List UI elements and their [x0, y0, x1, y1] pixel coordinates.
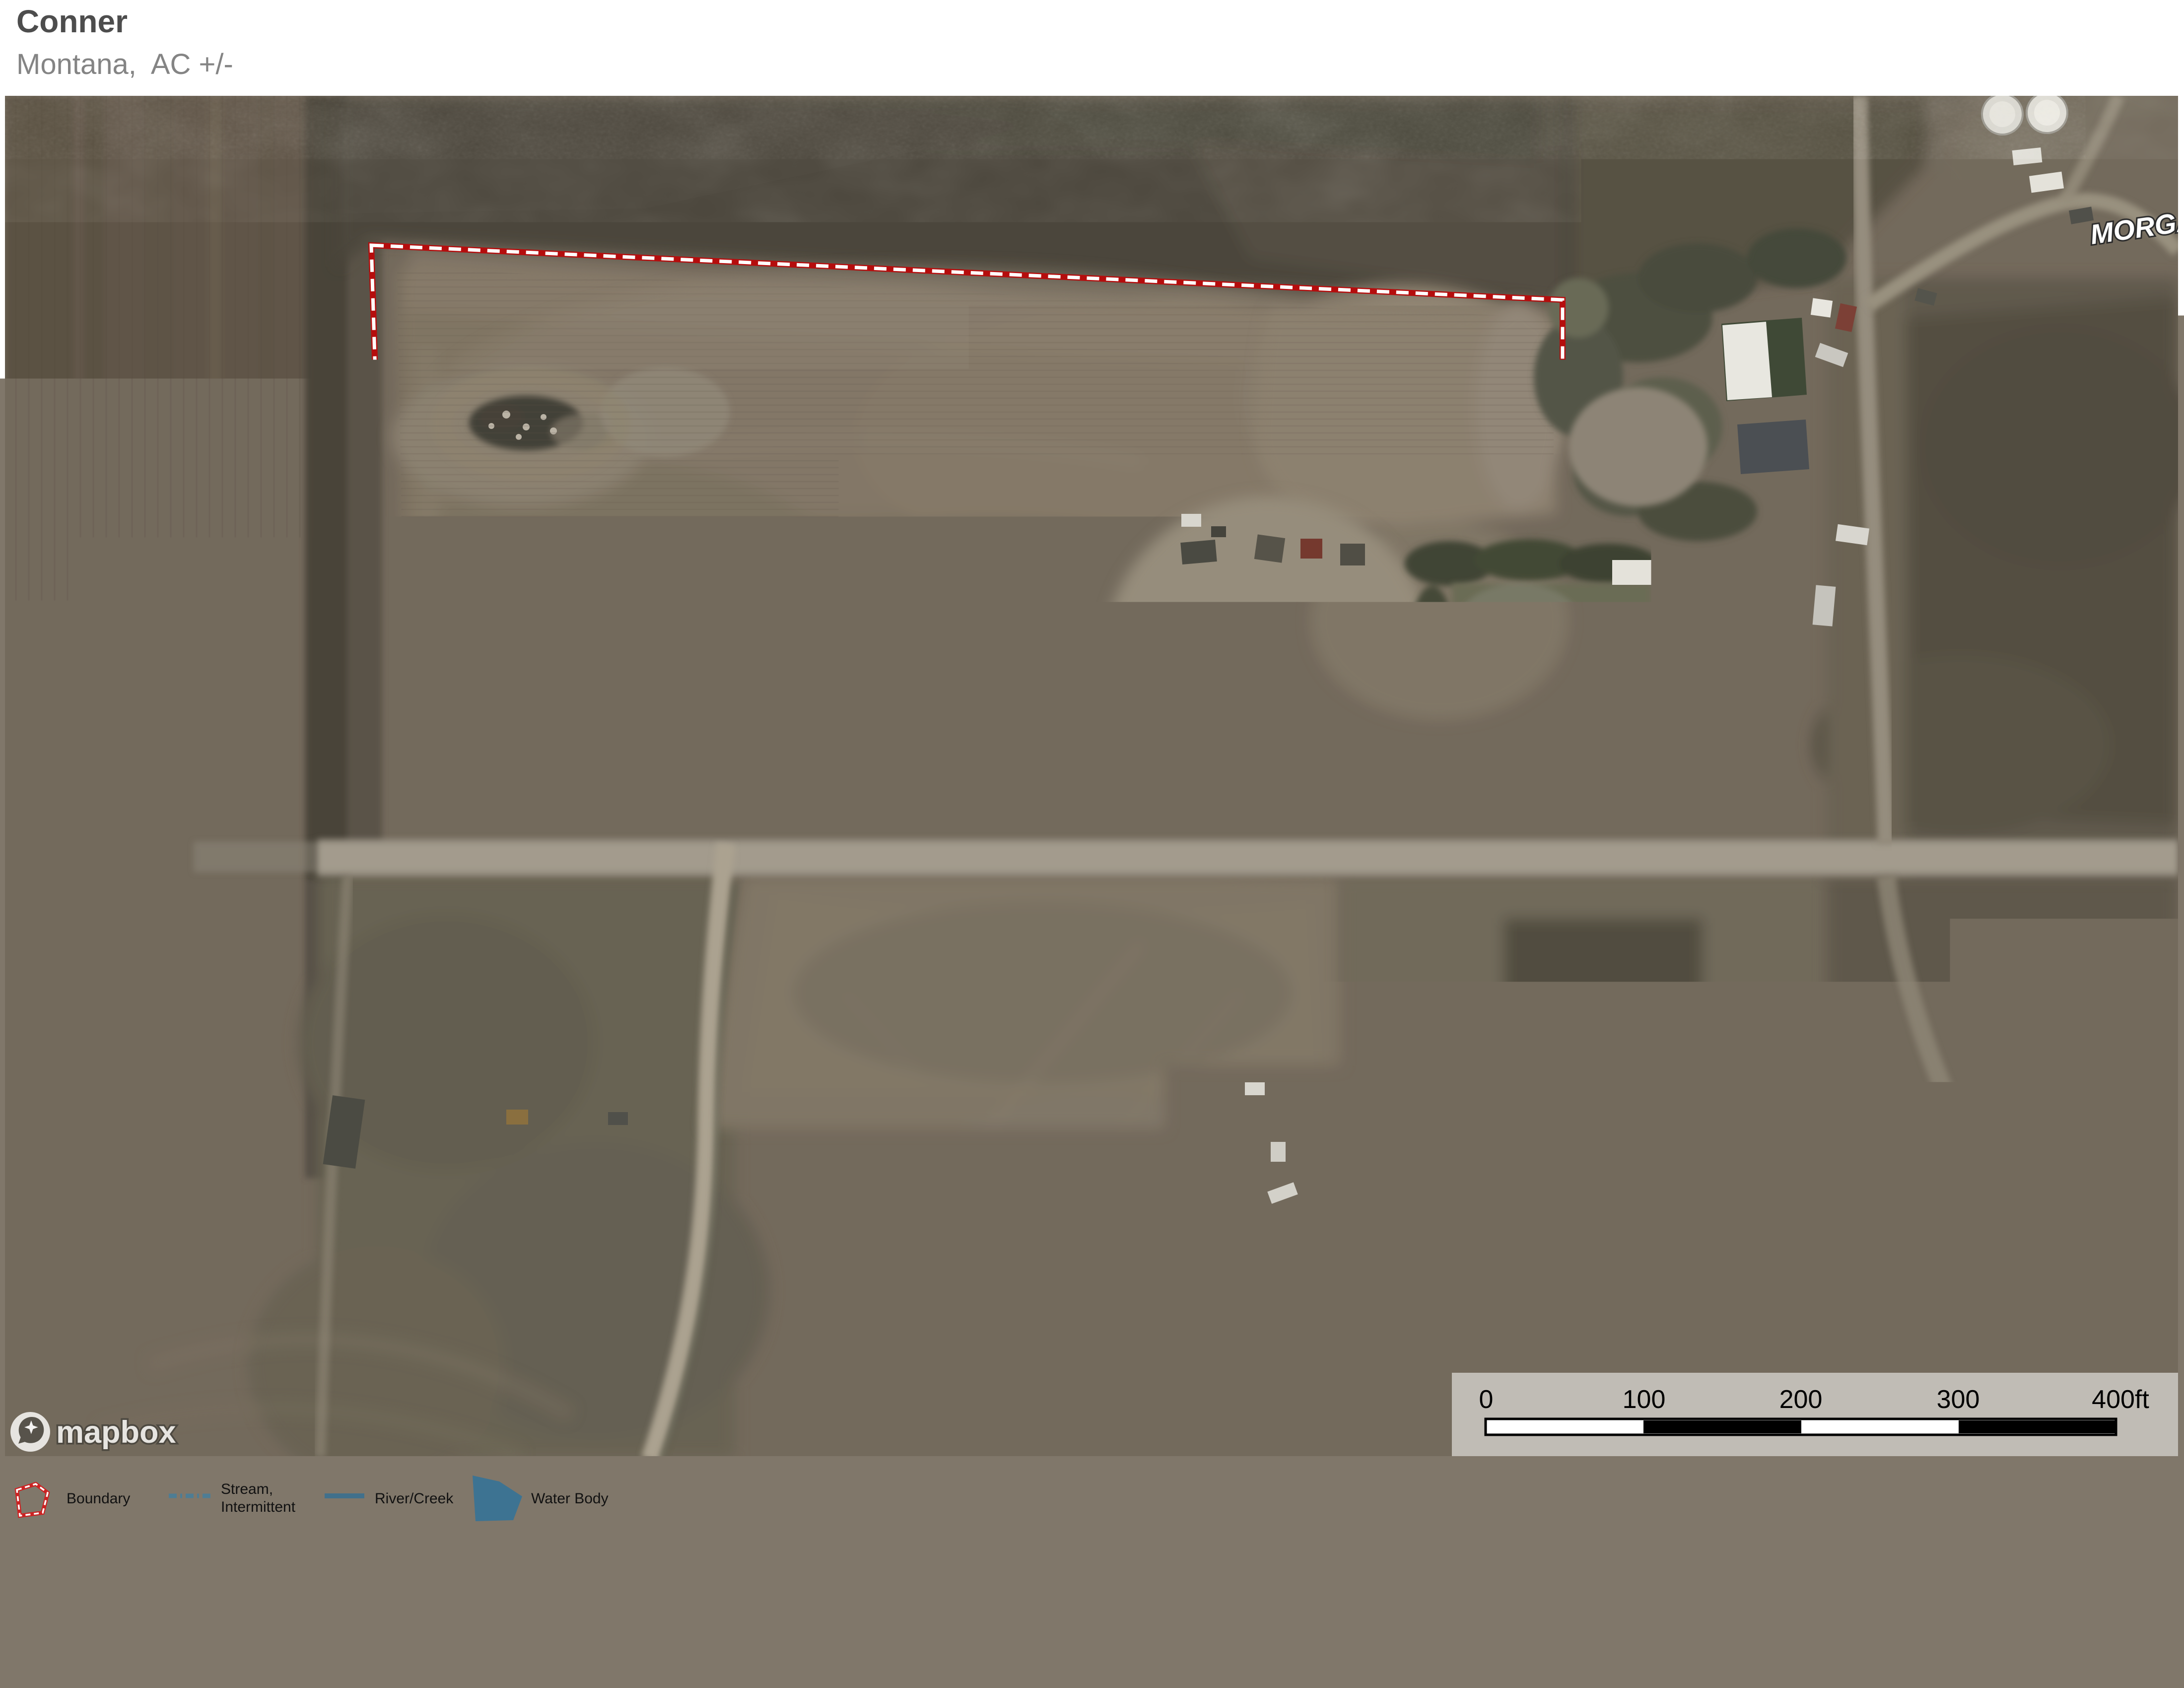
svg-text:200: 200: [1779, 1385, 1823, 1414]
svg-text:MAIN ST: MAIN ST: [1043, 840, 1147, 867]
svg-text:MAIN ST: MAIN ST: [2064, 840, 2168, 867]
svg-text:MAIN ST: MAIN ST: [1804, 840, 1908, 867]
svg-text:100: 100: [1623, 1385, 1666, 1414]
svg-text:mapbox: mapbox: [56, 1415, 176, 1450]
svg-text:MAIN ST: MAIN ST: [1297, 840, 1401, 867]
svg-text:300: 300: [1937, 1385, 1980, 1414]
svg-text:0: 0: [1479, 1385, 1494, 1414]
svg-text:MAIN ST: MAIN ST: [1554, 840, 1658, 867]
svg-text:400ft: 400ft: [2092, 1385, 2149, 1414]
